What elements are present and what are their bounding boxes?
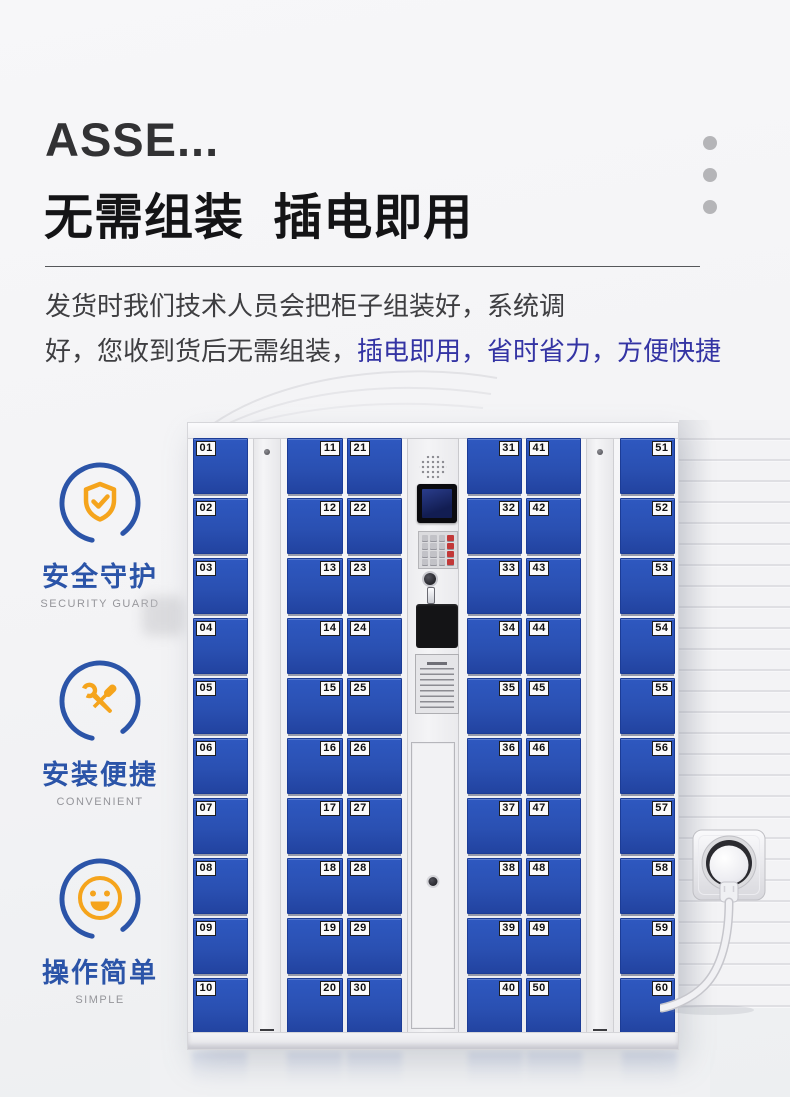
locker-door: 16 [287,738,343,794]
locker-door: 10 [193,978,248,1034]
door-number: 15 [320,681,340,696]
door-number: 32 [499,501,519,516]
locker-door: 47 [526,798,581,854]
feature-sublabel: SIMPLE [75,994,124,1006]
door-column: 21222324252627282930 [347,438,402,1034]
notice-sticker [415,654,459,714]
keypad-key [422,551,429,557]
locker-door: 55 [620,678,675,734]
page-title: 无需组装 插电即用 [44,178,473,249]
door-number: 23 [350,561,370,576]
door-number: 39 [499,921,519,936]
door-number: 43 [529,561,549,576]
feature-security: 安全守护 SECURITY GUARD [40,460,159,610]
locker-door: 25 [347,678,402,734]
locker-door: 42 [526,498,581,554]
divider [45,266,700,267]
locker-door: 22 [347,498,402,554]
locker-door: 30 [347,978,402,1034]
door-number: 35 [499,681,519,696]
locker-door: 17 [287,798,343,854]
scanner-window [416,604,458,648]
door-number: 40 [499,981,519,996]
locker-door: 06 [193,738,248,794]
locker-door: 14 [287,618,343,674]
door-number: 18 [320,861,340,876]
background-arcs [205,350,505,428]
door-number: 10 [196,981,216,996]
door-number: 51 [652,441,672,456]
locker-door: 23 [347,558,402,614]
locker-cabinet: 0102030405060708091011121314151617181920… [187,422,679,1050]
locker-door: 15 [287,678,343,734]
door-number: 54 [652,621,672,636]
cabinet-top [188,423,678,439]
title-english: ASSE... [45,112,219,167]
locker-door: 28 [347,858,402,914]
locker-door: 31 [467,438,522,494]
door-number: 42 [529,501,549,516]
locker-door: 38 [467,858,522,914]
locker-door: 24 [347,618,402,674]
keypad-key [430,543,437,549]
door-number: 53 [652,561,672,576]
locker-door: 21 [347,438,402,494]
shield-check-icon [57,460,143,546]
locker-door: 48 [526,858,581,914]
door-number: 52 [652,501,672,516]
locker-door: 34 [467,618,522,674]
control-column [407,438,460,1034]
locker-door: 08 [193,858,248,914]
locker-door: 09 [193,918,248,974]
door-number: 09 [196,921,216,936]
door-number: 38 [499,861,519,876]
service-door-lock-icon [429,877,438,886]
door-number: 57 [652,801,672,816]
door-number: 47 [529,801,549,816]
door-number: 41 [529,441,549,456]
door-number: 16 [320,741,340,756]
door-number: 04 [196,621,216,636]
keypad-key [447,551,454,557]
dot-icon [703,136,717,150]
keypad [418,531,458,569]
door-number: 08 [196,861,216,876]
keypad-key [430,535,437,541]
door-number: 49 [529,921,549,936]
door-number: 27 [350,801,370,816]
door-number: 48 [529,861,549,876]
locker-door: 01 [193,438,248,494]
key-icon [427,587,435,604]
screen-display [422,489,452,518]
keypad-key [430,559,437,565]
locker-door: 45 [526,678,581,734]
dot-icon [703,200,717,214]
locker-door: 49 [526,918,581,974]
door-number: 17 [320,801,340,816]
door-number: 01 [196,441,216,456]
door-column: 11121314151617181920 [287,438,343,1034]
locker-door: 26 [347,738,402,794]
locker-door: 44 [526,618,581,674]
keypad-key [447,535,454,541]
locker-door: 04 [193,618,248,674]
locker-door: 27 [347,798,402,854]
locker-door: 53 [620,558,675,614]
locker-door: 07 [193,798,248,854]
door-column: 31323334353637383940 [467,438,522,1034]
door-number: 24 [350,621,370,636]
door-number: 30 [350,981,370,996]
tools-icon [57,658,143,744]
locker-door: 12 [287,498,343,554]
door-number: 55 [652,681,672,696]
door-number: 46 [529,741,549,756]
door-number: 21 [350,441,370,456]
locker-door: 35 [467,678,522,734]
locker-door: 43 [526,558,581,614]
keypad-key [430,551,437,557]
door-number: 28 [350,861,370,876]
feature-operation: 操作简单 SIMPLE [42,856,158,1006]
locker-door: 20 [287,978,343,1034]
locker-door: 29 [347,918,402,974]
door-number: 29 [350,921,370,936]
door-number: 34 [499,621,519,636]
door-number: 13 [320,561,340,576]
door-number: 22 [350,501,370,516]
feature-list: 安全守护 SECURITY GUARD 安装便捷 CONVENIEN [38,460,162,1054]
locker-door: 05 [193,678,248,734]
door-number: 36 [499,741,519,756]
locker-door: 03 [193,558,248,614]
locker-door: 37 [467,798,522,854]
door-number: 25 [350,681,370,696]
locker-door: 36 [467,738,522,794]
promo-page: ASSE... 无需组装 插电即用 发货时我们技术人员会把柜子组装好，系统调 好… [0,0,790,1097]
locker-door: 33 [467,558,522,614]
feature-label: 安全守护 [42,555,158,594]
door-number: 07 [196,801,216,816]
keypad-key [422,535,429,541]
locker-door: 41 [526,438,581,494]
door-number: 11 [320,441,340,456]
door-number: 26 [350,741,370,756]
locker-door: 11 [287,438,343,494]
keypad-key [447,543,454,549]
feature-label: 安装便捷 [42,753,158,792]
door-number: 06 [196,741,216,756]
description-line1: 发货时我们技术人员会把柜子组装好，系统调 [45,291,565,321]
floor-reflection-fade [150,1050,710,1097]
locker-door: 32 [467,498,522,554]
locker-door: 46 [526,738,581,794]
door-number: 33 [499,561,519,576]
door-number: 14 [320,621,340,636]
locker-door: 02 [193,498,248,554]
locker-door: 39 [467,918,522,974]
door-column: 41424344454647484950 [526,438,581,1034]
door-number: 05 [196,681,216,696]
feature-installation: 安装便捷 CONVENIENT [42,658,158,808]
door-number: 02 [196,501,216,516]
power-socket [660,820,790,1020]
cabinet-base [188,1032,678,1049]
door-number: 03 [196,561,216,576]
decoration-dots [703,136,717,214]
locker-door: 18 [287,858,343,914]
cabinet-body: 0102030405060708091011121314151617181920… [193,438,675,1034]
key-lock-icon [424,573,436,585]
display-screen [417,484,457,523]
smiley-icon [57,856,143,942]
hinge-strip [253,438,282,1034]
locker-door: 50 [526,978,581,1034]
door-column: 01020304050607080910 [193,438,248,1034]
keypad-key [439,543,446,549]
door-number: 12 [320,501,340,516]
door-number: 37 [499,801,519,816]
keypad-key [439,559,446,565]
door-number: 19 [320,921,340,936]
locker-door: 54 [620,618,675,674]
service-door [411,742,456,1029]
door-number: 31 [499,441,519,456]
door-number: 44 [529,621,549,636]
hinge-strip [586,438,615,1034]
locker-door: 19 [287,918,343,974]
background-blur-blob [142,596,184,636]
locker-door: 56 [620,738,675,794]
feature-label: 操作简单 [42,951,158,990]
feature-sublabel: CONVENIENT [56,796,143,808]
locker-door: 52 [620,498,675,554]
keypad-key [422,559,429,565]
locker-door: 13 [287,558,343,614]
door-number: 45 [529,681,549,696]
keypad-key [422,543,429,549]
dot-icon [703,168,717,182]
door-number: 20 [320,981,340,996]
keypad-key [439,535,446,541]
door-number: 56 [652,741,672,756]
keypad-key [447,559,454,565]
locker-door: 40 [467,978,522,1034]
keypad-key [439,551,446,557]
locker-door: 51 [620,438,675,494]
door-number: 50 [529,981,549,996]
speaker-grille-icon [419,455,447,479]
